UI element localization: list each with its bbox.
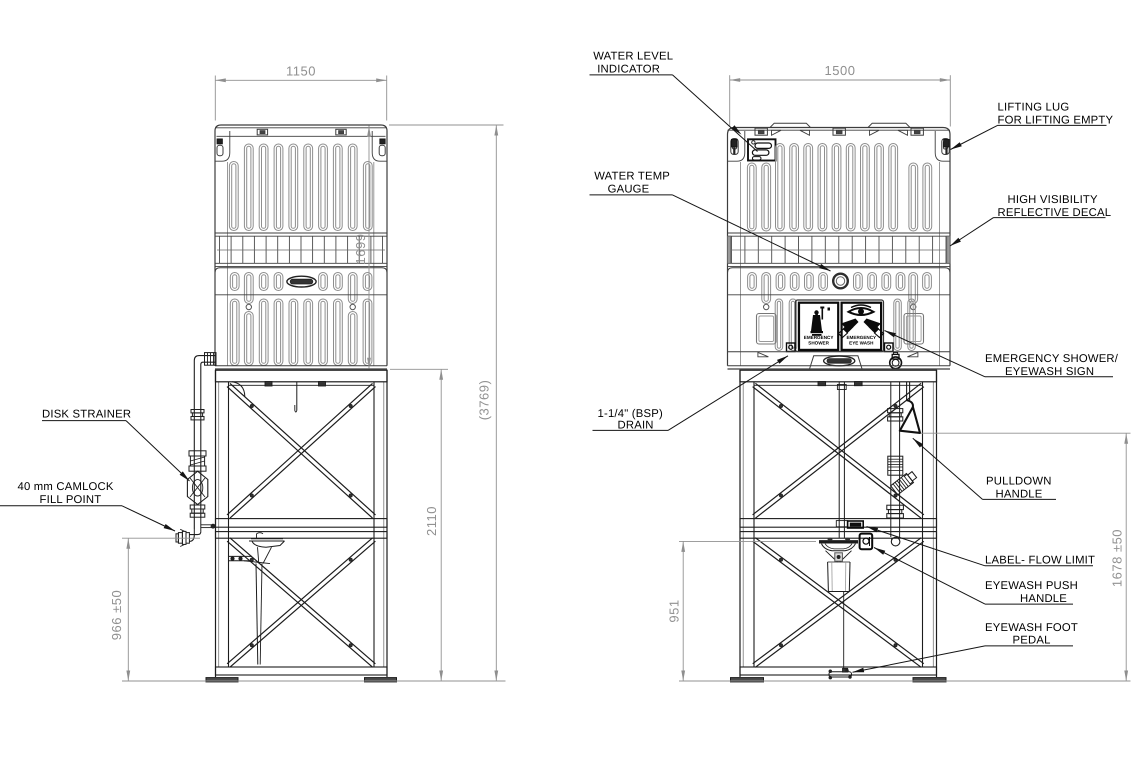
svg-text:LIFTING LUG: LIFTING LUG xyxy=(998,102,1070,114)
svg-text:2110: 2110 xyxy=(424,506,439,536)
svg-text:SHOWER: SHOWER xyxy=(808,341,829,346)
svg-text:EYE WASH: EYE WASH xyxy=(849,341,874,346)
svg-text:EYEWASH FOOT: EYEWASH FOOT xyxy=(985,622,1078,634)
svg-text:EMERGENCY: EMERGENCY xyxy=(804,335,834,340)
svg-text:1150: 1150 xyxy=(286,63,316,78)
svg-text:EMERGENCY SHOWER/: EMERGENCY SHOWER/ xyxy=(985,353,1119,365)
svg-text:HANDLE: HANDLE xyxy=(1020,593,1067,605)
svg-text:WATER LEVEL: WATER LEVEL xyxy=(593,51,673,63)
svg-text:INDICATOR: INDICATOR xyxy=(597,64,660,76)
svg-text:EMERGENCY: EMERGENCY xyxy=(846,335,876,340)
svg-text:PEDAL: PEDAL xyxy=(1013,635,1051,647)
svg-text:DRAIN: DRAIN xyxy=(618,419,654,431)
svg-text:(3769): (3769) xyxy=(476,380,491,421)
svg-text:EYEWASH PUSH: EYEWASH PUSH xyxy=(985,580,1078,592)
svg-text:966 ±50: 966 ±50 xyxy=(109,590,124,640)
svg-text:40 mm CAMLOCK: 40 mm CAMLOCK xyxy=(18,481,114,493)
svg-text:1500: 1500 xyxy=(825,63,856,78)
svg-text:GAUGE: GAUGE xyxy=(608,183,650,195)
svg-text:FILL POINT: FILL POINT xyxy=(40,494,102,506)
svg-text:LABEL- FLOW LIMIT: LABEL- FLOW LIMIT xyxy=(985,555,1095,567)
svg-text:1678 ±50: 1678 ±50 xyxy=(1110,529,1125,587)
svg-text:FOR LIFTING EMPTY: FOR LIFTING EMPTY xyxy=(998,115,1114,127)
svg-text:1699: 1699 xyxy=(353,234,368,265)
svg-text:1-1/4" (BSP): 1-1/4" (BSP) xyxy=(598,408,663,420)
svg-text:WATER TEMP: WATER TEMP xyxy=(594,170,670,182)
svg-text:951: 951 xyxy=(666,599,681,622)
svg-text:HIGH VISIBILITY: HIGH VISIBILITY xyxy=(1008,194,1099,206)
svg-text:PULLDOWN: PULLDOWN xyxy=(986,476,1052,488)
svg-text:DISK STRAINER: DISK STRAINER xyxy=(42,409,131,421)
